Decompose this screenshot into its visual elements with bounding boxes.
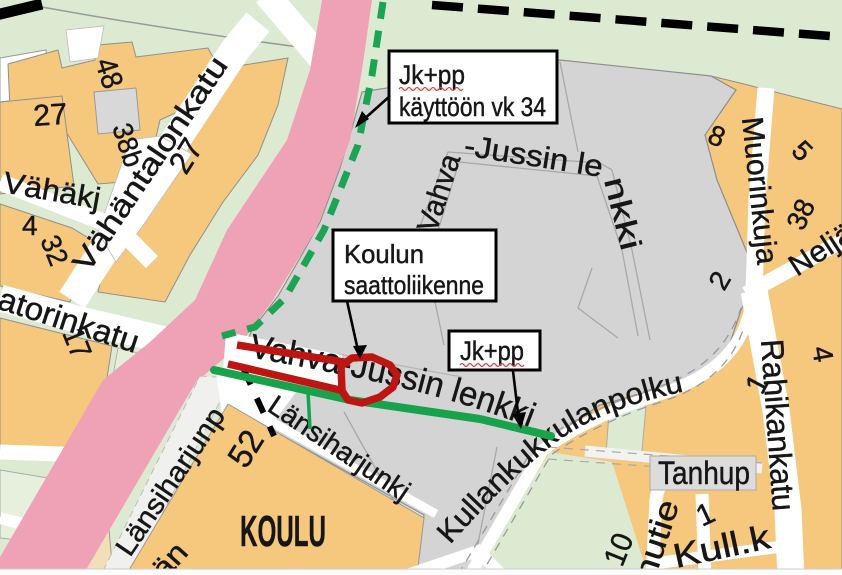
svg-text:Jk+pp: Jk+pp bbox=[460, 336, 524, 366]
svg-text:Koulun: Koulun bbox=[344, 239, 424, 269]
svg-text:27: 27 bbox=[32, 98, 68, 133]
svg-text:Tanhup: Tanhup bbox=[658, 455, 750, 491]
svg-text:Jk+pp: Jk+pp bbox=[399, 60, 465, 90]
svg-text:saattoliikenne: saattoliikenne bbox=[344, 270, 484, 300]
svg-text:KOULU: KOULU bbox=[240, 507, 326, 556]
svg-text:käyttöön vk 34: käyttöön vk 34 bbox=[399, 92, 546, 122]
svg-text:4: 4 bbox=[22, 210, 38, 241]
